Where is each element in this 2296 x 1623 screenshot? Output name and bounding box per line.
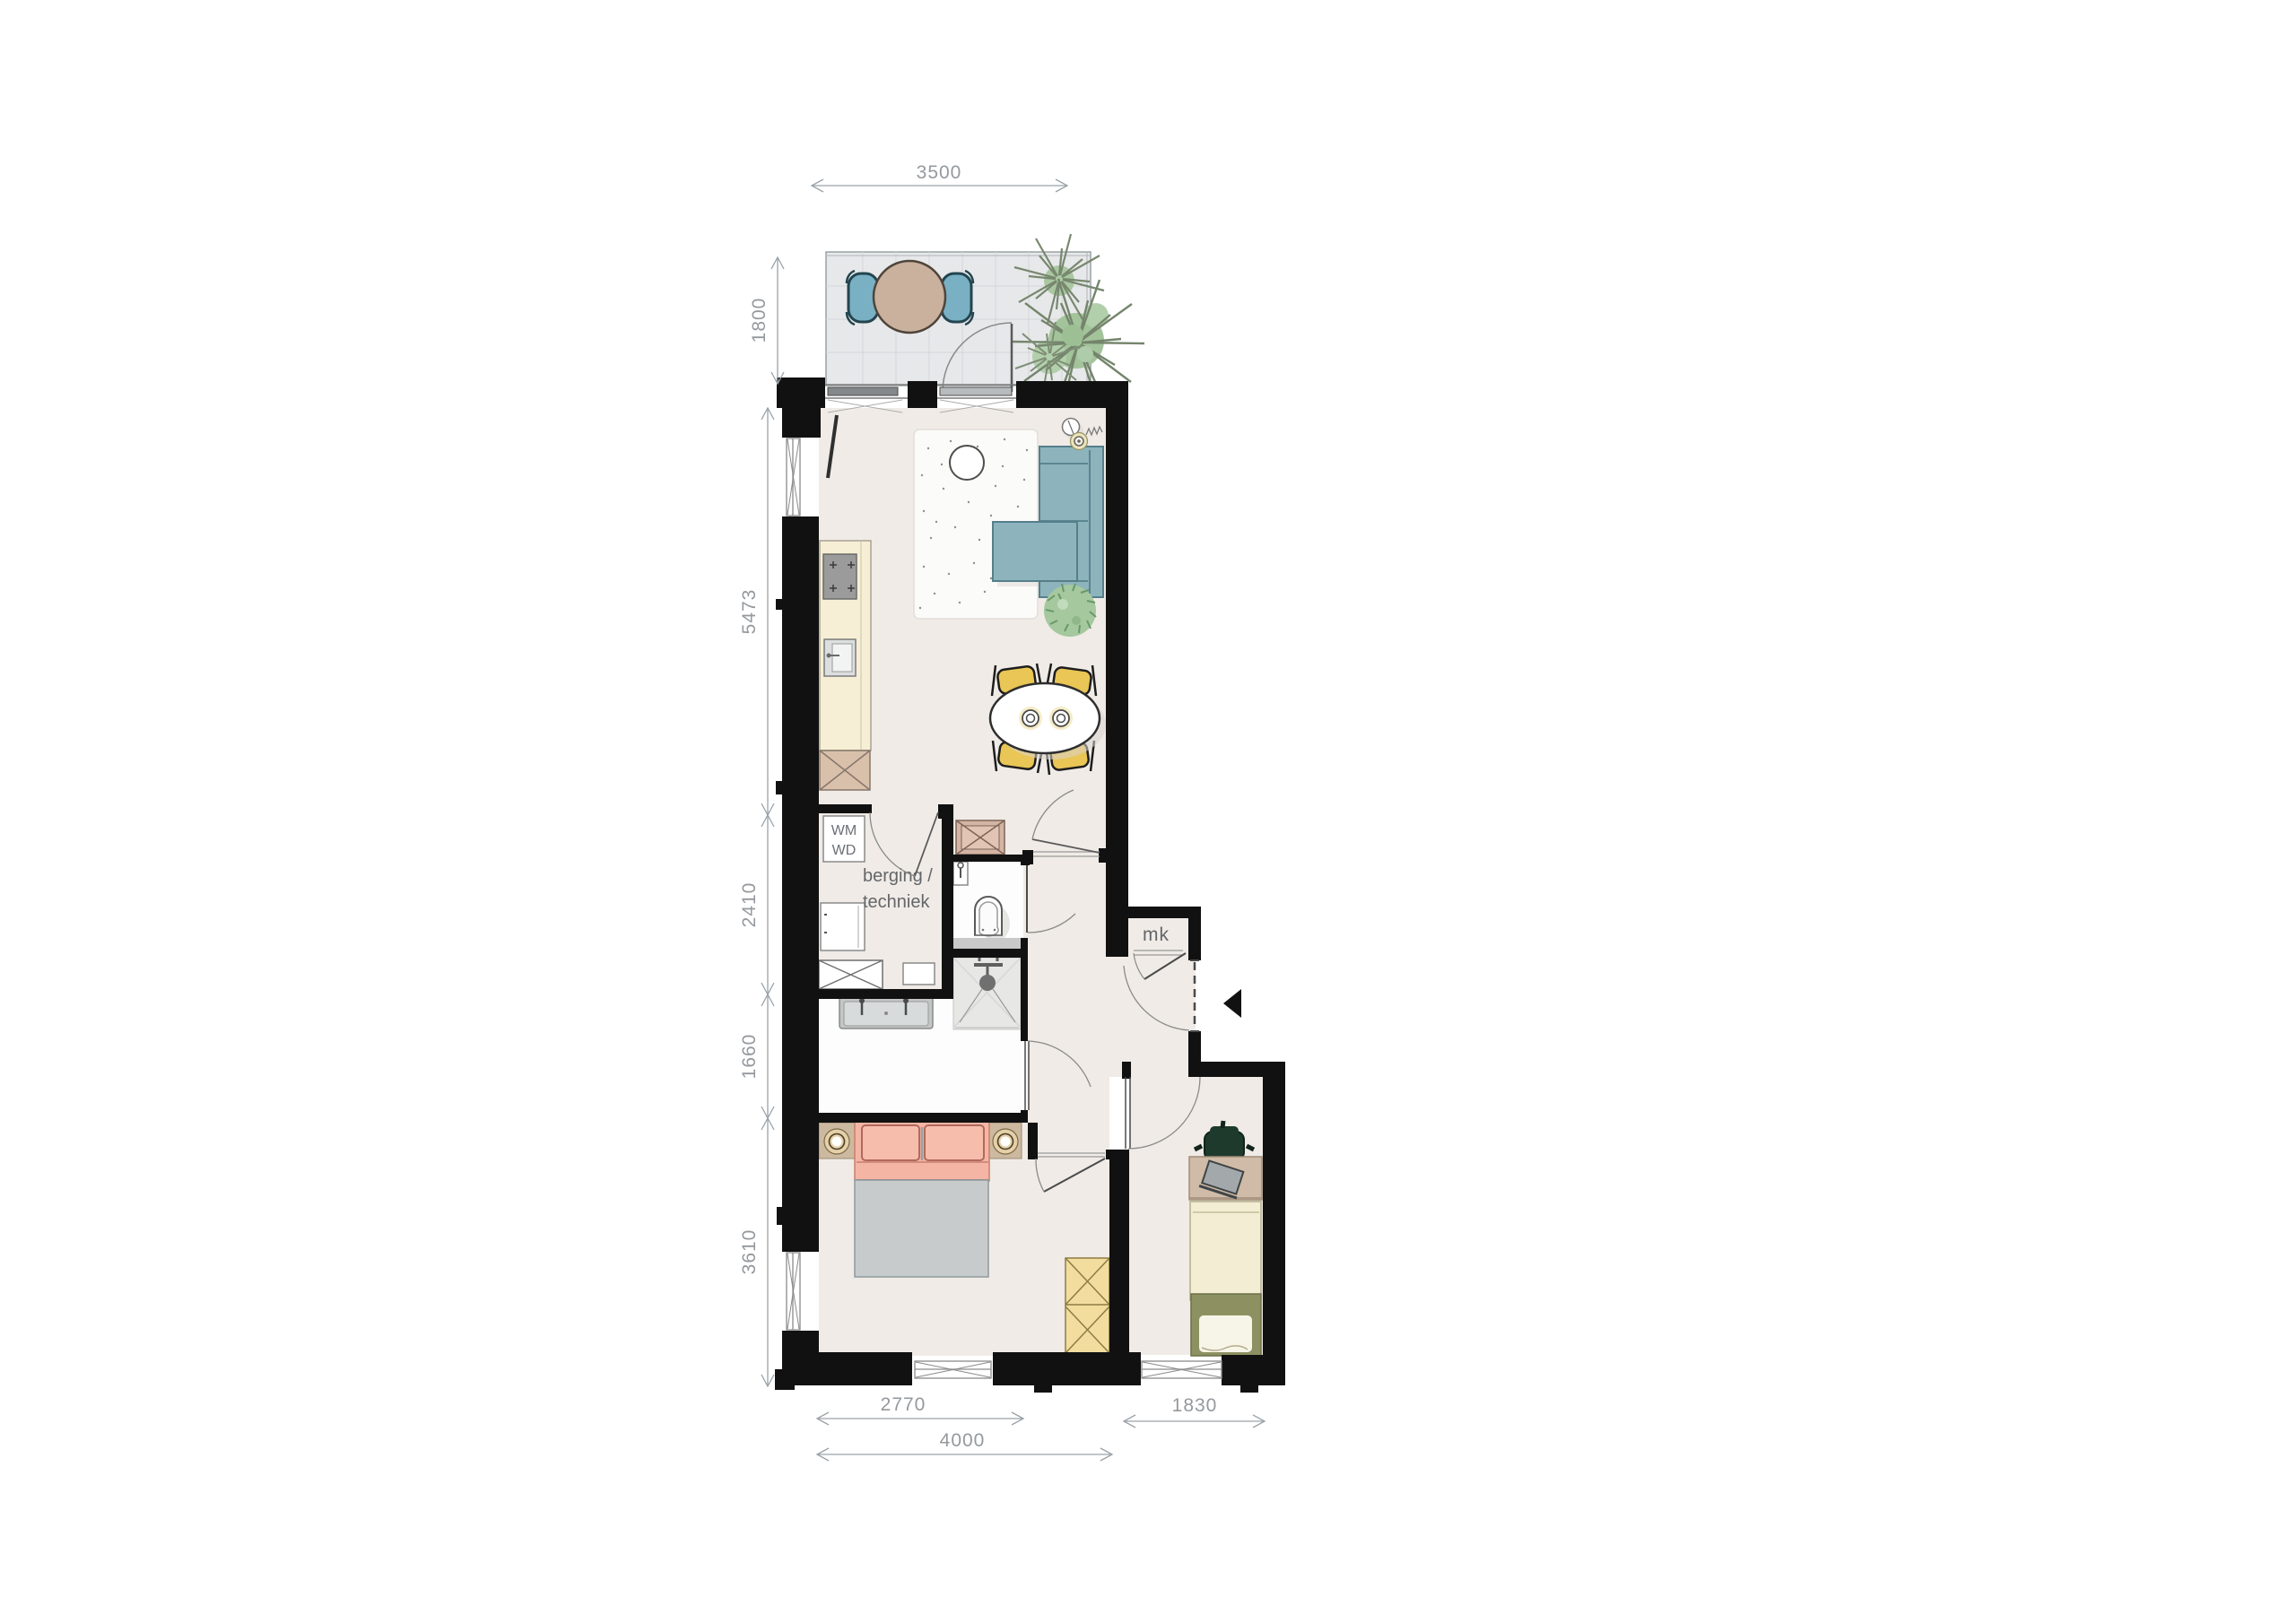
svg-text:2410: 2410 [739,882,760,928]
svg-text:1830: 1830 [1172,1395,1218,1416]
svg-text:WM: WM [831,823,857,838]
svg-text:berging /: berging / [863,866,933,886]
svg-text:mk: mk [1143,924,1170,945]
svg-text:techniek: techniek [863,892,930,912]
svg-text:5473: 5473 [739,589,760,635]
svg-text:1800: 1800 [749,298,770,343]
svg-text:3610: 3610 [739,1229,760,1275]
svg-text:1660: 1660 [739,1034,760,1080]
svg-text:WD: WD [832,843,857,858]
svg-text:2770: 2770 [881,1394,926,1415]
svg-text:3500: 3500 [917,162,962,183]
svg-text:4000: 4000 [940,1430,986,1451]
